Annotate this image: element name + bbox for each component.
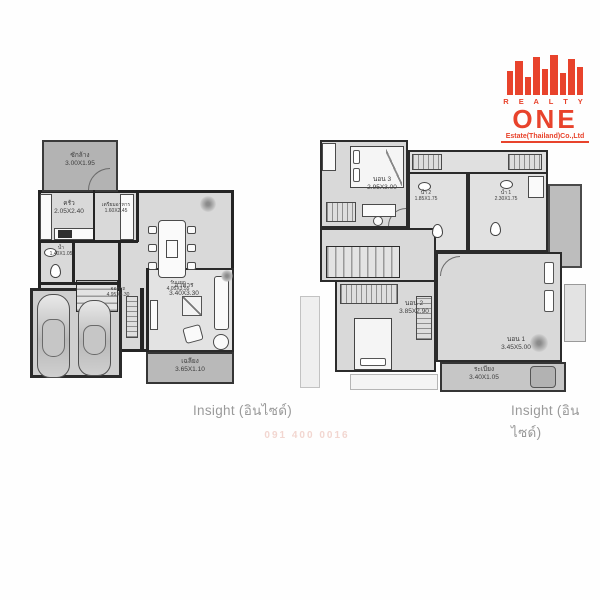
room-label-laundry: ซักล้าง 3.00X1.95: [52, 152, 108, 169]
room-size: 3.85X2.90: [399, 308, 429, 316]
skyline-bar: [568, 59, 575, 95]
skyline-bar: [542, 69, 548, 95]
skyline-bar: [577, 67, 583, 95]
room-label-balcony: ระเบียง 3.40X1.05: [460, 366, 508, 383]
pillow: [544, 290, 554, 312]
room-label-parking: จอดรถ 4.95X4.30: [100, 286, 136, 298]
skyline-bar: [560, 73, 566, 95]
room-size: 3.65X1.10: [175, 366, 205, 374]
pantry-counter: [120, 194, 134, 240]
sink-icon: [500, 180, 513, 189]
room-size: 1.60X2.45: [105, 208, 128, 214]
toilet-icon: [432, 224, 443, 238]
skyline-bar: [533, 57, 540, 95]
chair: [148, 244, 157, 252]
toilet-icon: [490, 222, 501, 236]
dining-table-center: [166, 240, 178, 258]
chair: [187, 244, 196, 252]
room-name: นอน 2: [405, 300, 423, 308]
coffee-table-diagonal: [183, 297, 201, 315]
logo-estate-text: Estate(Thailand)Co.,Ltd: [501, 133, 589, 143]
room-label-bed3: นอน 3 2.95X3.00: [358, 176, 406, 193]
room-label-kitchen: ครัว 2.05X2.40: [48, 200, 90, 217]
car-roof: [83, 325, 106, 355]
skyline-bar: [515, 61, 523, 95]
skyline-bar: [525, 77, 531, 95]
wall: [38, 282, 120, 285]
chair: [148, 262, 157, 270]
room-size: 2.05X2.40: [54, 208, 84, 216]
pillow: [353, 150, 360, 164]
room-size: 4.95X4.30: [107, 292, 130, 298]
toilet-icon: [50, 264, 61, 278]
wall: [140, 288, 144, 350]
closet-niche: [322, 143, 336, 171]
pillow: [544, 262, 554, 284]
staircase: [326, 246, 400, 278]
wall: [93, 190, 95, 242]
city-skyline-icon: [501, 55, 589, 95]
roof-below: [300, 296, 320, 388]
room-label-terrace: เฉลียง 3.65X1.10: [168, 358, 212, 375]
dresser: [326, 202, 356, 222]
tv-cabinet: [150, 300, 158, 330]
balcony-bench: [530, 366, 556, 388]
vanity-counter: [412, 154, 442, 170]
sofa: [214, 276, 229, 330]
car-roof: [42, 319, 65, 357]
room-label-bed1: นอน 1 3.45X5.00: [492, 336, 540, 353]
plant-icon: [221, 270, 233, 282]
room-name: ครัว: [63, 200, 75, 208]
floorplan-image: R E A L T Y ONE Estate(Thailand)Co.,Ltd …: [0, 0, 600, 600]
wall: [146, 268, 149, 352]
desk: [340, 284, 398, 304]
pillow: [360, 358, 386, 366]
room-label-bath2: น้ำ 2 1.85X1.75: [410, 190, 442, 202]
side-ledge: [564, 284, 586, 342]
plant-icon: [200, 196, 216, 212]
chair: [148, 226, 157, 234]
vanity-counter: [508, 154, 542, 170]
room-label-bath1: น้ำ 1 2.30X1.75: [490, 190, 522, 202]
watermark-text: 091 400 0016: [232, 430, 382, 441]
stove-icon: [58, 230, 72, 238]
room-size: 1.40X1.05: [50, 251, 73, 257]
room-label-pantry: เตรียมอาหาร 1.60X2.45: [95, 202, 137, 214]
realty-one-logo: R E A L T Y ONE Estate(Thailand)Co.,Ltd: [501, 55, 589, 143]
shower: [528, 176, 544, 198]
wall: [38, 240, 138, 243]
room-size: 3.45X5.00: [501, 344, 531, 352]
wall: [118, 242, 121, 290]
skyline-bar: [550, 55, 558, 95]
room-size: 2.30X1.75: [495, 196, 518, 202]
porch-below: [350, 374, 438, 390]
room-label-bath-f1: น้ำ 1.40X1.05: [46, 245, 76, 257]
floor1-caption: Insight (อินไซด์): [193, 399, 292, 421]
room-name: ระเบียง: [474, 366, 494, 374]
room-name: นอน 1: [507, 336, 525, 344]
floor2-caption: Insight (อินไซด์): [511, 399, 600, 443]
skyline-bar: [507, 71, 513, 95]
car-icon: [78, 300, 111, 376]
desk: [362, 204, 396, 217]
room-name: ซักล้าง: [70, 152, 89, 160]
room-size: 3.00X1.95: [65, 160, 95, 168]
room-size: 2.95X3.00: [367, 184, 397, 192]
desk-chair: [373, 216, 383, 226]
shoe-cabinet: [126, 296, 138, 338]
wall: [136, 190, 139, 242]
room-label-bed2: นอน 2 3.85X2.90: [392, 300, 436, 317]
chair: [187, 226, 196, 234]
room-label-living: รับแขก 4.05X3.55: [160, 280, 196, 292]
room-size: 1.85X1.75: [415, 196, 438, 202]
car-icon: [37, 294, 70, 378]
room-size: 3.40X1.05: [469, 374, 499, 382]
coffee-table: [182, 296, 202, 316]
room-name: นอน 3: [373, 176, 391, 184]
room-name: เฉลียง: [181, 358, 199, 366]
room-size: 4.05X3.55: [167, 286, 190, 292]
logo-one-text: ONE: [501, 106, 589, 132]
round-table: [213, 334, 229, 350]
chair: [187, 262, 196, 270]
